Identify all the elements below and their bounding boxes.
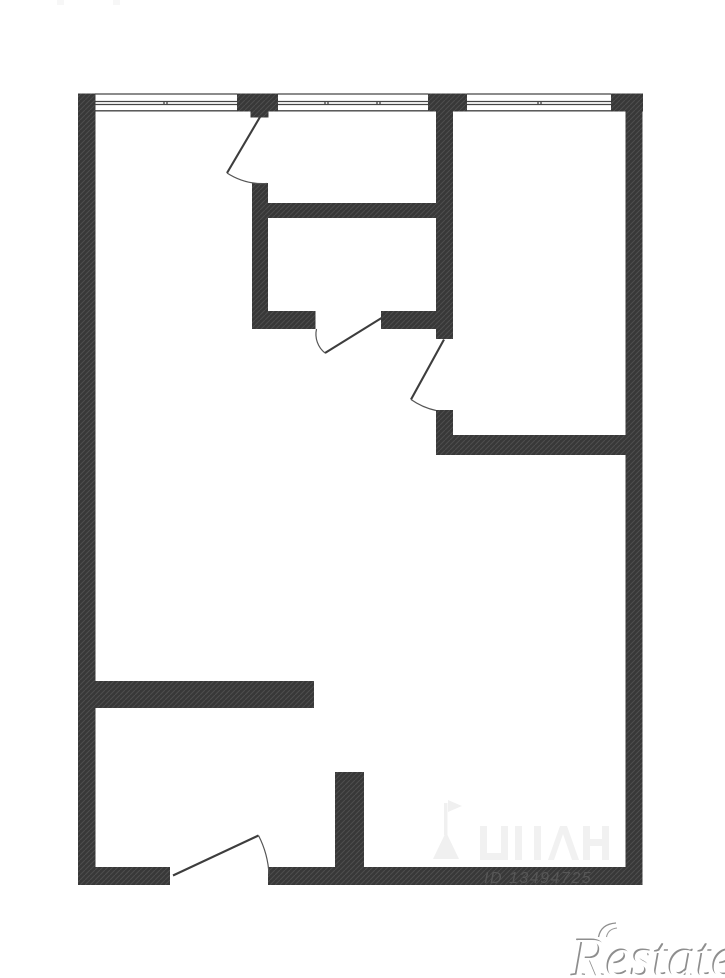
- svg-text:Restate: Restate: [571, 928, 725, 978]
- svg-text:ID 13494725: ID 13494725: [484, 870, 592, 887]
